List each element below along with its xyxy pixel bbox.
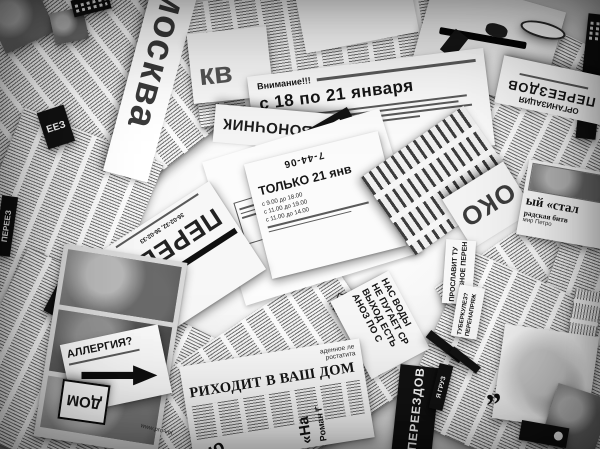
white-dot — [553, 431, 563, 441]
stalingrad-article-scrap: ый «стал радская битв мир Петро — [516, 159, 600, 249]
pereezdov-banner-text: ПЕРЕЕЗДОВ — [405, 367, 428, 449]
oko-headline: ОКО — [455, 176, 522, 234]
illegible-white-text — [590, 27, 600, 31]
newspaper-collage-photo: москва кв ОРГАНИЗАЦИЯ ПЕРЕЕЗДОВ Внимание… — [0, 0, 600, 449]
dom-text: ДОМ — [66, 391, 103, 413]
illegible-white-text — [589, 32, 600, 36]
illegible-white-text — [590, 22, 600, 26]
illegible-white-text — [589, 36, 600, 40]
ya-gruz-text: Я ГРУЗ — [435, 375, 447, 399]
pereez-vertical-text: ПЕРЕЕЗ — [0, 209, 13, 242]
eez-text: ЕЕЗ — [45, 119, 67, 136]
dom-box-upside-down: ДОМ — [57, 379, 110, 425]
